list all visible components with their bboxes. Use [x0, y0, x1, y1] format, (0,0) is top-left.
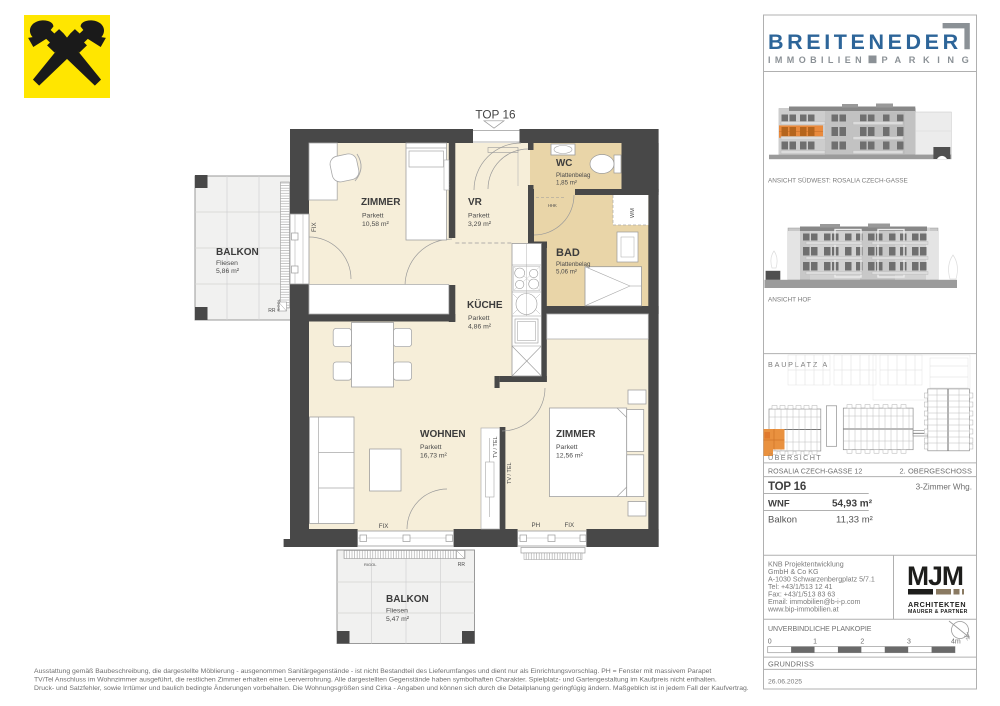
svg-text:Parkett: Parkett	[556, 444, 578, 451]
svg-text:FIX: FIX	[379, 523, 389, 530]
svg-text:KÜCHE: KÜCHE	[467, 298, 503, 311]
svg-text:3,29 m²: 3,29 m²	[468, 221, 492, 228]
svg-text:Parkett: Parkett	[468, 213, 490, 220]
svg-text:PARKING: PARKING	[882, 55, 977, 65]
svg-text:12,56 m²: 12,56 m²	[556, 453, 584, 460]
svg-text:26.06.2025: 26.06.2025	[768, 679, 802, 686]
svg-text:4m: 4m	[951, 639, 961, 646]
svg-text:Plattenbelag: Plattenbelag	[556, 172, 591, 179]
svg-text:PH: PH	[532, 522, 541, 529]
svg-text:BAUPLATZ A: BAUPLATZ A	[768, 360, 829, 369]
svg-text:ÜBERSICHT: ÜBERSICHT	[768, 453, 822, 462]
svg-text:HHK: HHK	[548, 203, 557, 208]
svg-text:HHK: HHK	[448, 180, 453, 189]
svg-text:RR: RR	[458, 562, 466, 568]
svg-text:VR: VR	[468, 197, 483, 208]
svg-text:TOP 16: TOP 16	[475, 108, 516, 122]
svg-text:ANSICHT HOF: ANSICHT HOF	[768, 297, 811, 304]
svg-text:WNF: WNF	[768, 499, 790, 510]
svg-text:BALKON: BALKON	[216, 247, 259, 258]
svg-text:FIX: FIX	[311, 222, 318, 232]
svg-text:Druck- und Satzfehler, sowie I: Druck- und Satzfehler, sowie Irrtümer un…	[34, 684, 749, 692]
svg-text:2: 2	[860, 639, 864, 646]
svg-text:Ausstattung gemäß Baubeschreib: Ausstattung gemäß Baubeschreibung, die d…	[34, 668, 711, 675]
svg-text:N: N	[965, 635, 972, 642]
svg-text:16,73 m²: 16,73 m²	[420, 453, 448, 460]
svg-text:Parkett: Parkett	[468, 315, 490, 322]
svg-text:Fliesen: Fliesen	[216, 260, 238, 267]
svg-text:ANSICHT SÜDWEST: ROSALIA CZECH: ANSICHT SÜDWEST: ROSALIA CZECH-GASSE	[768, 177, 908, 185]
svg-text:2. OBERGESCHOSS: 2. OBERGESCHOSS	[899, 467, 972, 476]
svg-text:IMMOBILIEN: IMMOBILIEN	[768, 55, 866, 65]
svg-text:3-Zimmer Whg.: 3-Zimmer Whg.	[916, 483, 972, 492]
svg-text:BREITENEDER: BREITENEDER	[768, 30, 962, 54]
svg-text:TOP 16: TOP 16	[768, 481, 806, 493]
svg-text:MJM: MJM	[907, 561, 963, 591]
svg-text:Fliesen: Fliesen	[386, 608, 408, 615]
svg-text:1: 1	[813, 639, 817, 646]
svg-text:ZIMMER: ZIMMER	[361, 197, 401, 208]
svg-text:RIGOL: RIGOL	[364, 562, 377, 567]
svg-text:Balkon: Balkon	[768, 515, 797, 526]
svg-text:RR: RR	[268, 308, 276, 314]
svg-text:RIGOL: RIGOL	[276, 298, 281, 311]
svg-text:11,33 m²: 11,33 m²	[836, 515, 873, 526]
svg-text:TV/Tel Anschluss im Wohnzimmer: TV/Tel Anschluss im Wohnzimmer ausgeführ…	[34, 677, 717, 684]
svg-text:MAURER & PARTNER: MAURER & PARTNER	[908, 609, 968, 615]
svg-text:WOHNEN: WOHNEN	[420, 429, 466, 440]
svg-text:www.bip-immobilien.at: www.bip-immobilien.at	[767, 606, 839, 614]
svg-text:TV / TEL: TV / TEL	[493, 436, 499, 458]
svg-text:FIX: FIX	[565, 522, 575, 529]
svg-text:GRUNDRISS: GRUNDRISS	[768, 660, 814, 669]
svg-text:10,58 m²: 10,58 m²	[362, 221, 390, 228]
svg-text:5,86 m²: 5,86 m²	[216, 268, 240, 275]
svg-text:UNVERBINDLICHE PLANKOPIE: UNVERBINDLICHE PLANKOPIE	[768, 626, 872, 633]
svg-text:BALKON: BALKON	[386, 594, 429, 605]
svg-text:5,47 m²: 5,47 m²	[386, 616, 410, 623]
svg-text:1,85 m²: 1,85 m²	[556, 180, 577, 187]
svg-text:54,93 m²: 54,93 m²	[832, 499, 873, 510]
svg-text:0: 0	[768, 639, 772, 646]
svg-text:Plattenbelag: Plattenbelag	[556, 261, 591, 268]
svg-text:Parkett: Parkett	[362, 213, 384, 220]
svg-text:WM: WM	[630, 208, 636, 218]
svg-text:Parkett: Parkett	[420, 444, 442, 451]
svg-text:WC: WC	[556, 158, 572, 169]
svg-text:5,06 m²: 5,06 m²	[556, 269, 577, 276]
svg-text:3: 3	[907, 639, 911, 646]
svg-text:TV / TEL: TV / TEL	[507, 462, 513, 484]
svg-text:ZIMMER: ZIMMER	[556, 429, 596, 440]
svg-text:ARCHITEKTEN: ARCHITEKTEN	[908, 600, 966, 609]
svg-text:ROSALIA CZECH-GASSE 12: ROSALIA CZECH-GASSE 12	[768, 469, 862, 476]
svg-text:4,86 m²: 4,86 m²	[468, 324, 492, 331]
svg-text:BAD: BAD	[556, 247, 580, 259]
